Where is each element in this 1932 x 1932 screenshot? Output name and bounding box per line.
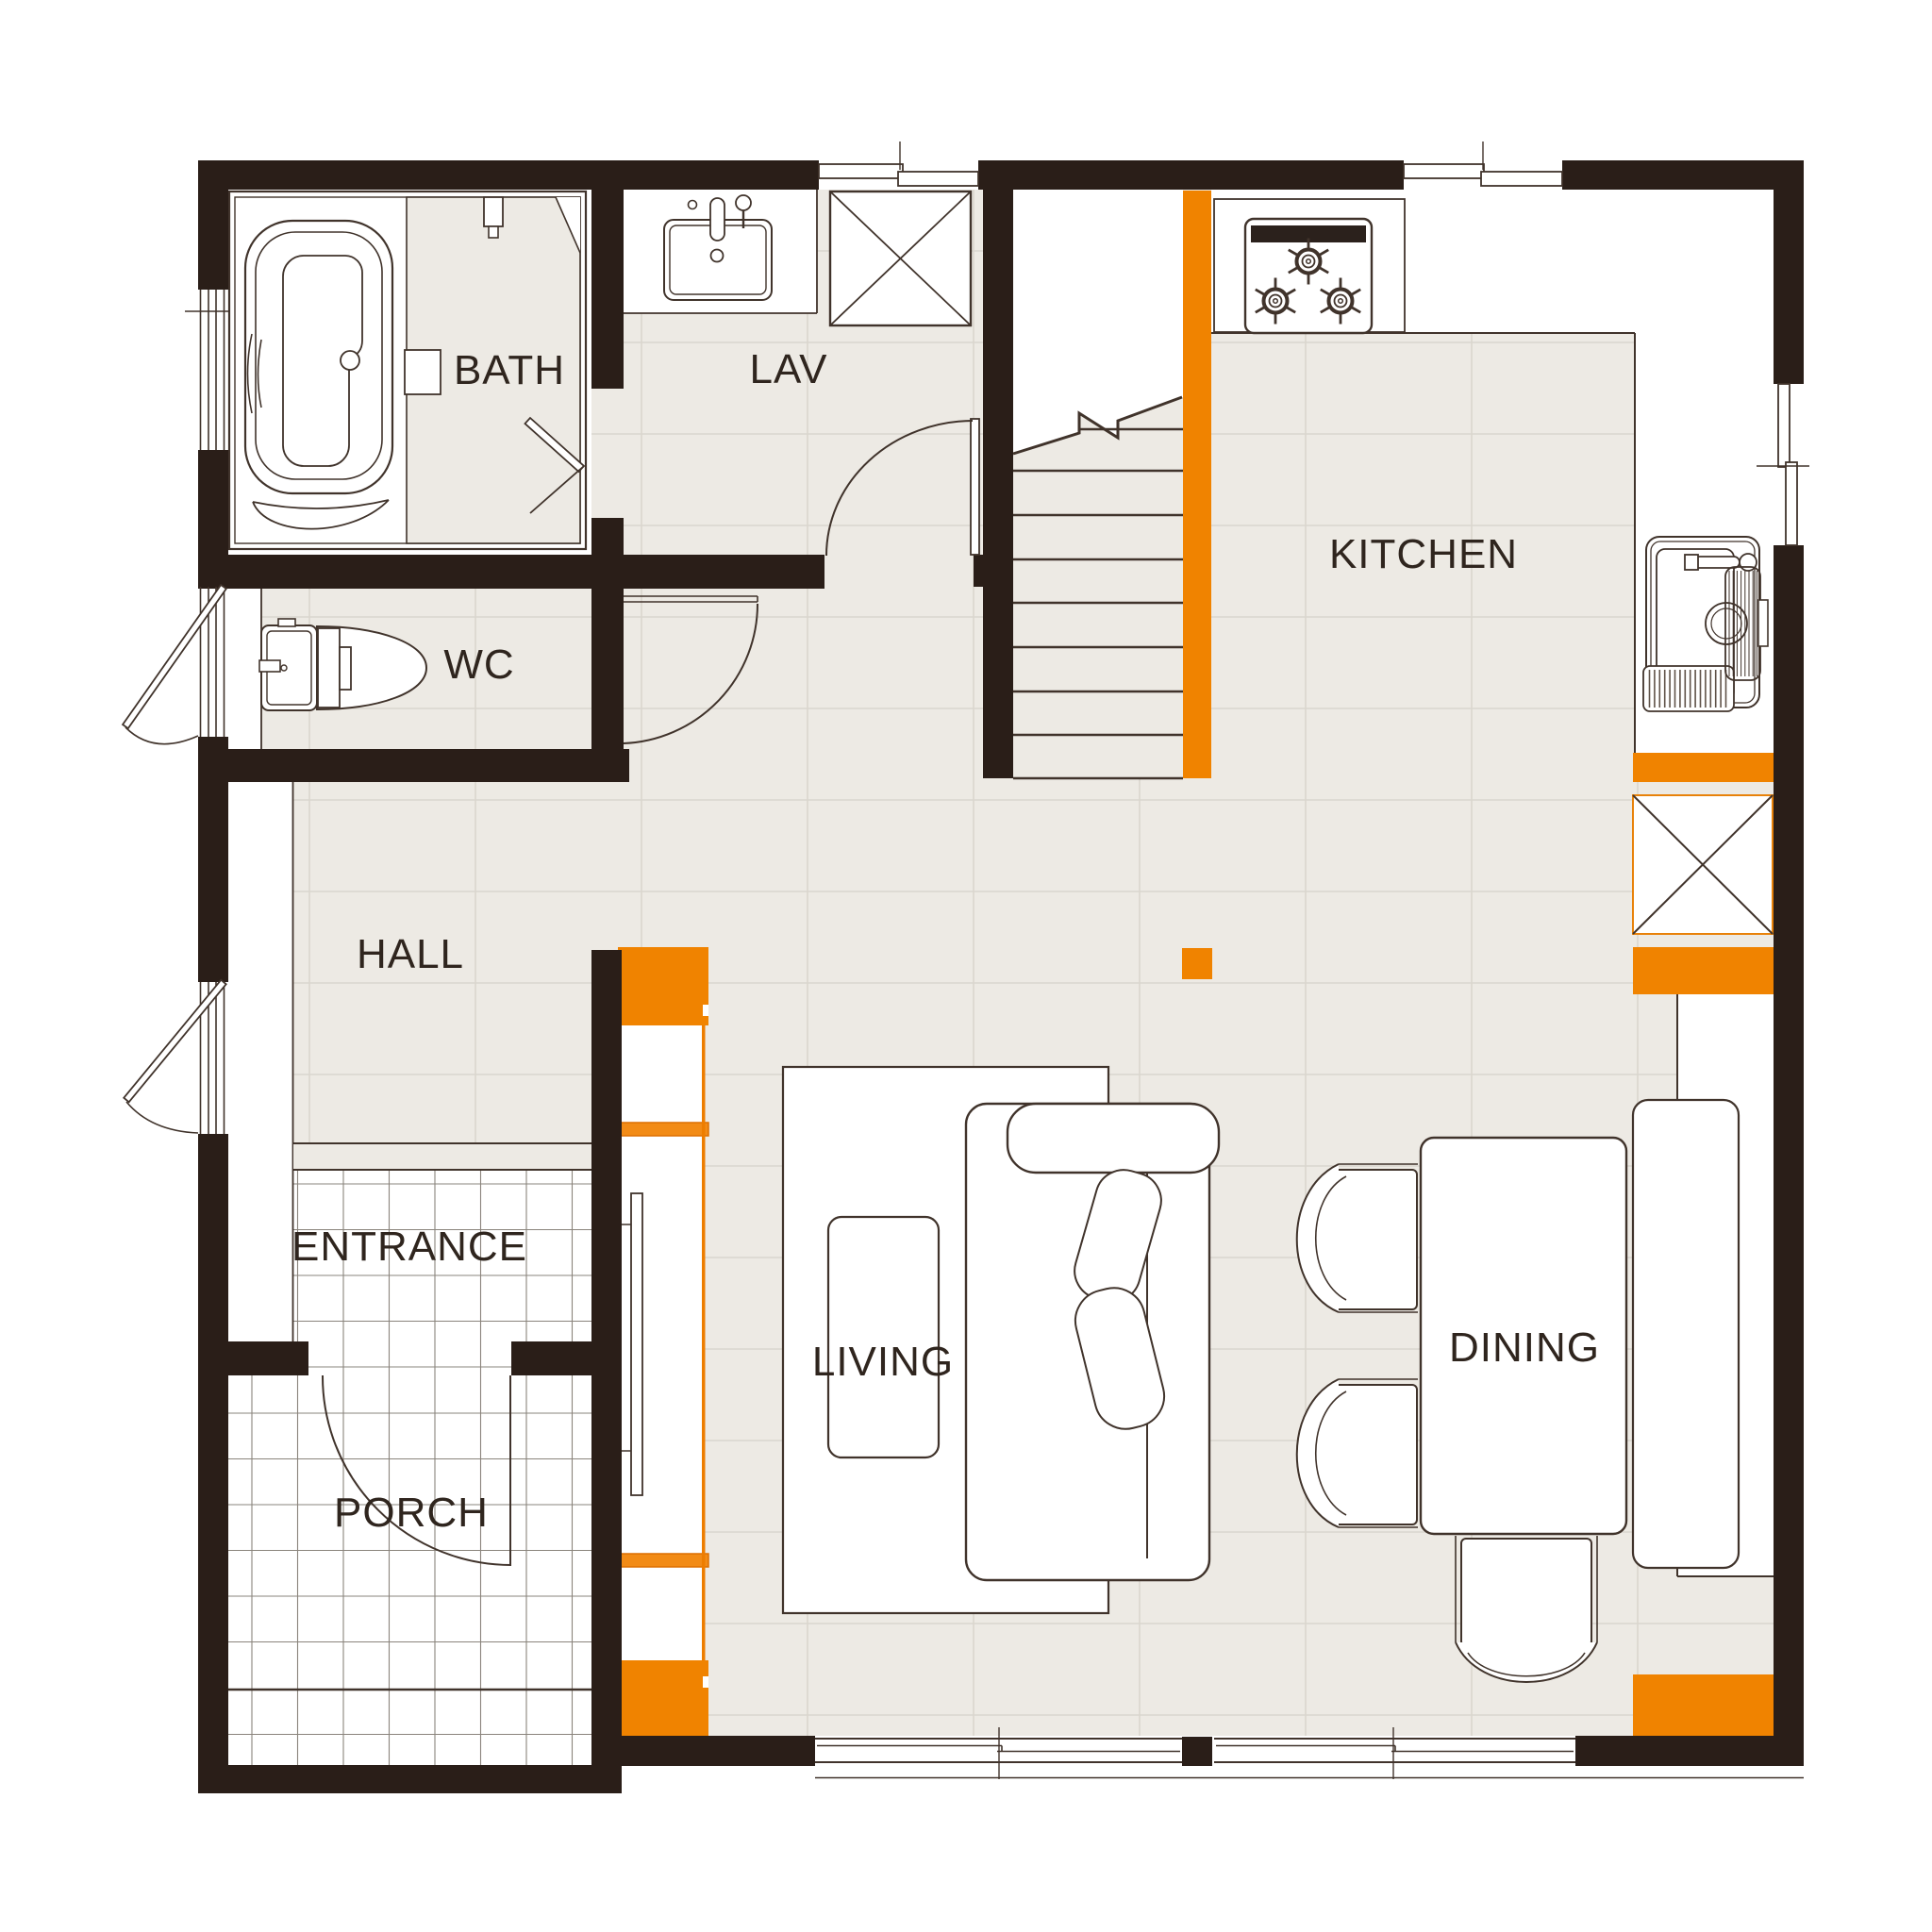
svg-text:LAV: LAV [750, 346, 828, 392]
svg-text:LIVING: LIVING [812, 1339, 954, 1385]
svg-text:KITCHEN: KITCHEN [1329, 531, 1518, 577]
svg-text:WC: WC [443, 641, 514, 688]
svg-text:PORCH: PORCH [334, 1490, 489, 1536]
svg-text:DINING: DINING [1449, 1324, 1600, 1371]
svg-text:ENTRANCE: ENTRANCE [291, 1224, 527, 1270]
svg-text:HALL: HALL [357, 931, 464, 977]
svg-text:BATH: BATH [454, 347, 565, 393]
